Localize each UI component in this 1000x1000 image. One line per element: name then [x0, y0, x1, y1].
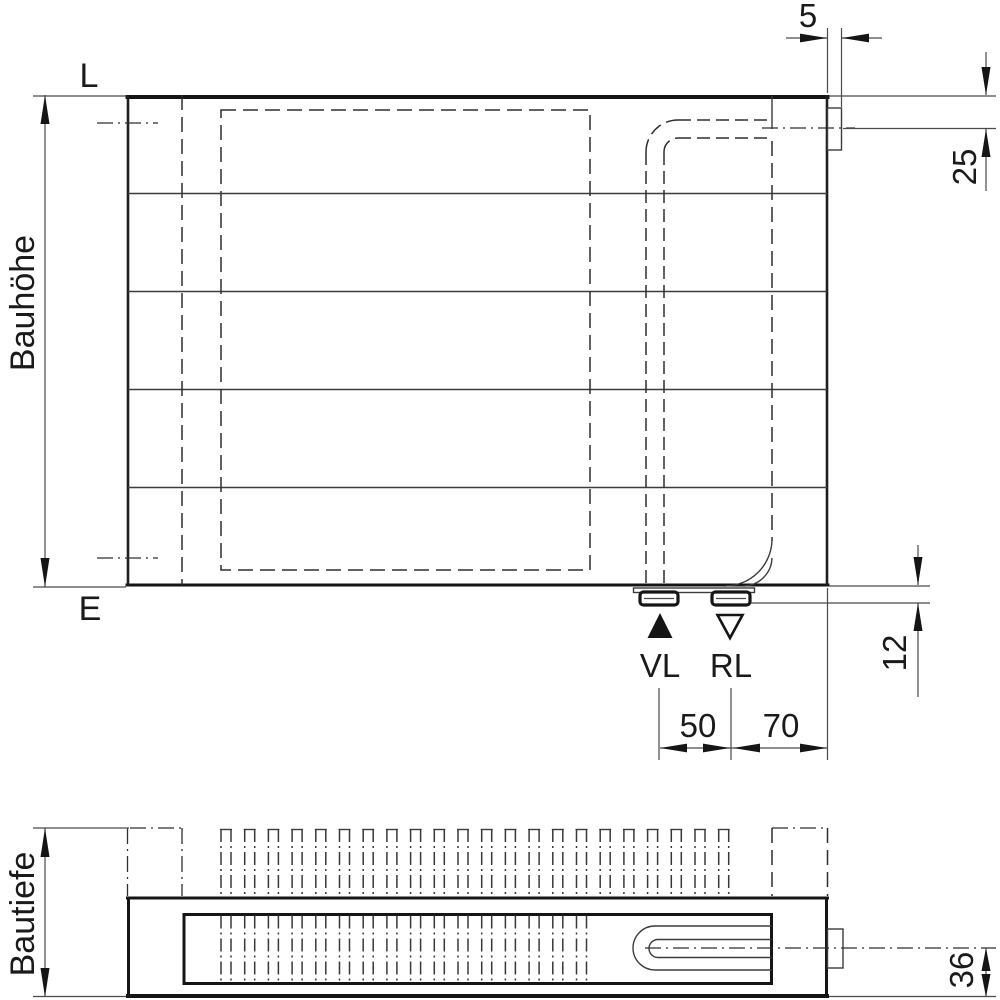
supply-pipe-inner-bend	[664, 138, 678, 152]
arrow-left2-icon	[733, 744, 760, 753]
bautiefe-label: Bautiefe	[4, 852, 42, 977]
valve-connection-tab	[828, 108, 842, 150]
arrow-up-icon	[914, 603, 923, 631]
radiator-drawing: VL RL L E Bauhöhe 5	[0, 0, 1000, 1000]
rl-label: RL	[710, 647, 752, 684]
dim-12-value: 12	[876, 635, 913, 672]
dim-70-value: 70	[763, 707, 800, 744]
arrow-right2-icon	[800, 744, 827, 753]
arrow-down-icon	[914, 557, 923, 585]
dim-36: 36	[829, 948, 996, 997]
dim-25: 25	[829, 52, 996, 191]
dim-5-value: 5	[799, 0, 817, 34]
bottom-connection-stubs	[634, 588, 755, 605]
supply-pipe-hidden	[646, 120, 772, 583]
return-triangle-icon	[718, 615, 743, 638]
dim-50-value: 50	[680, 707, 717, 744]
dim-5: 5	[786, 0, 882, 107]
panel-outline	[126, 95, 830, 586]
water-channel-outline	[184, 915, 772, 984]
vl-label: VL	[640, 647, 680, 684]
arrow-left-icon	[660, 744, 687, 753]
front-view: VL RL L E Bauhöhe 5	[4, 0, 996, 760]
vl-marker: VL	[640, 613, 680, 684]
arrow-down-icon	[982, 67, 991, 95]
technical-drawing-page: VL RL L E Bauhöhe 5	[0, 0, 1000, 1000]
convector-fin-comb	[220, 829, 730, 897]
dim-bautiefe: Bautiefe	[4, 828, 129, 997]
arrow-down-icon	[41, 558, 50, 587]
label-e: E	[79, 590, 102, 628]
dim-36-value: 36	[943, 952, 980, 989]
arrow-down-icon	[982, 974, 991, 997]
heating-plate-hidden-outline	[221, 110, 590, 570]
return-elbow-outer	[725, 540, 772, 586]
bauhoehe-label: Bauhöhe	[4, 235, 42, 371]
rl-marker: RL	[710, 615, 752, 684]
label-l: L	[80, 57, 99, 95]
return-pipe	[725, 96, 772, 586]
supply-triangle-icon	[648, 613, 673, 638]
arrow-left-icon	[842, 34, 869, 43]
arrow-right-icon	[703, 744, 730, 753]
channel-fin-lines	[221, 916, 587, 983]
arrow-right-icon	[800, 34, 827, 43]
dim-12: 12	[751, 545, 930, 697]
panel-groove-lines	[128, 194, 827, 488]
arrow-up-icon	[982, 948, 991, 971]
dim-bauhoehe: Bauhöhe	[4, 95, 126, 587]
supply-pipe-outer-bend	[646, 120, 678, 152]
arrow-up-icon	[41, 95, 50, 124]
dim-25-value: 25	[946, 149, 983, 186]
top-view: Bautiefe 36	[4, 828, 996, 997]
